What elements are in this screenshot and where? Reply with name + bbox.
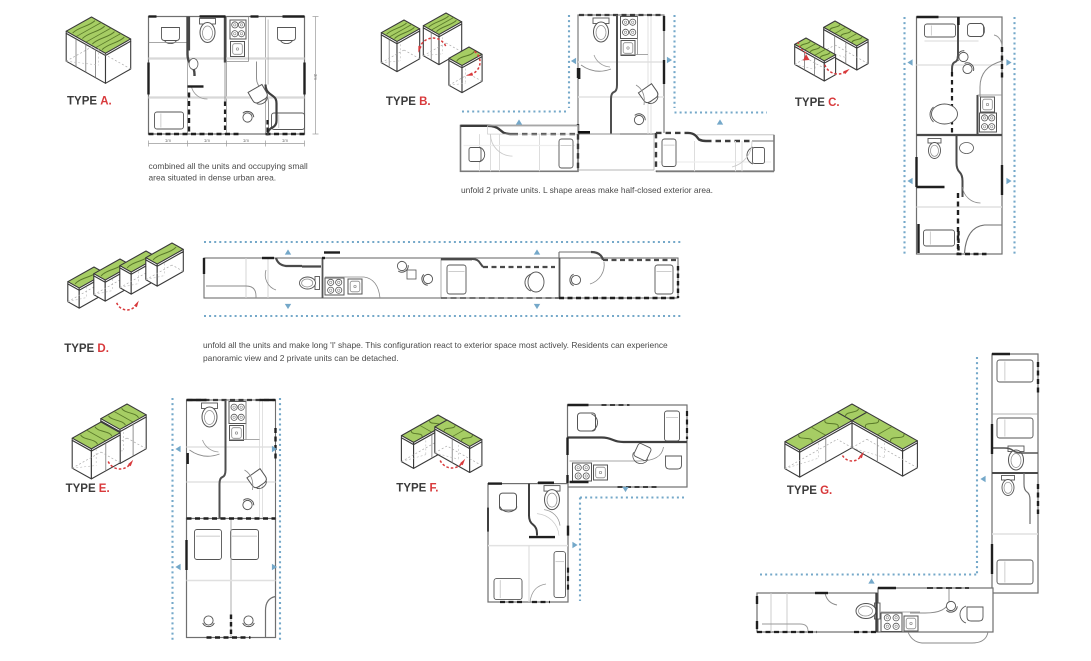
svg-text:TYPE: TYPE [787, 485, 817, 497]
svg-text:1m: 1m [204, 138, 211, 143]
svg-text:1m: 1m [282, 138, 289, 143]
svg-text:1m: 1m [243, 138, 250, 143]
svg-text:G.: G. [820, 485, 832, 497]
svg-text:A.: A. [100, 96, 112, 108]
svg-text:unfold all the units and make: unfold all the units and make long 'I' s… [203, 340, 668, 350]
svg-text:TYPE: TYPE [66, 483, 96, 495]
svg-text:TYPE: TYPE [67, 96, 97, 108]
svg-text:unfold 2 private units. L shap: unfold 2 private units. L shape areas ma… [461, 185, 713, 195]
svg-text:F.: F. [430, 483, 439, 495]
svg-text:TYPE: TYPE [795, 97, 825, 109]
svg-text:1m: 1m [165, 138, 172, 143]
svg-text:D.: D. [97, 343, 109, 355]
svg-text:panoramic view and 2 private u: panoramic view and 2 private units can b… [203, 353, 399, 363]
svg-text:E.: E. [99, 483, 110, 495]
svg-text:TYPE: TYPE [64, 343, 94, 355]
svg-text:C.: C. [828, 97, 840, 109]
svg-text:B.: B. [419, 96, 431, 108]
svg-text:combined all the units and occ: combined all the units and occupying sma… [149, 161, 308, 171]
svg-text:3m: 3m [313, 74, 318, 81]
svg-text:TYPE: TYPE [386, 96, 416, 108]
svg-text:area situated in dense urban a: area situated in dense urban area. [149, 172, 277, 182]
svg-text:TYPE: TYPE [396, 483, 426, 495]
